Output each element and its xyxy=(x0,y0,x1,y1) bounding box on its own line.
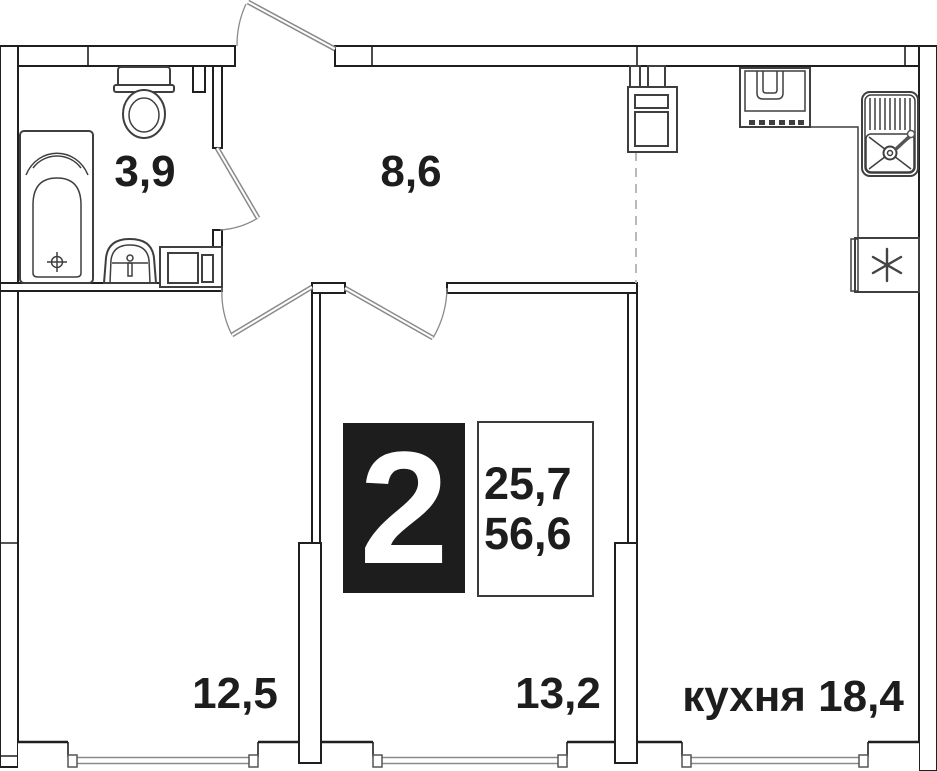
total-area-value: 56,6 xyxy=(484,509,592,559)
floor-plan: 3,9 8,6 12,5 13,2 кухня 18,4 2 25,7 56,6 xyxy=(0,0,937,771)
area-info-box: 25,7 56,6 xyxy=(477,421,594,597)
bedroom-left-area-label: 12,5 xyxy=(192,669,278,719)
hallway-walls xyxy=(312,283,637,293)
partition-bedrooms xyxy=(299,293,321,763)
washer-cabinet-icon xyxy=(160,247,222,287)
bedroom-left-door xyxy=(222,287,312,335)
bathroom-door xyxy=(217,148,258,230)
living-area-value: 25,7 xyxy=(484,459,592,509)
vent-shaft-icon xyxy=(628,66,677,152)
toilet-icon xyxy=(114,67,174,138)
bathroom-area-label: 3,9 xyxy=(114,147,175,197)
bathtub-icon xyxy=(20,131,93,283)
kitchen-room-name: кухня xyxy=(682,672,806,721)
washbasin-icon xyxy=(104,239,156,283)
kitchen-counter xyxy=(810,127,858,238)
hallway-area-label: 8,6 xyxy=(380,147,441,197)
kitchen-area-value: 18,4 xyxy=(818,672,904,721)
kitchen-label: кухня 18,4 xyxy=(682,672,904,722)
bedroom-middle-door xyxy=(345,288,447,338)
floor-plan-drawing xyxy=(0,0,937,771)
kitchen-sink-icon xyxy=(862,92,918,176)
partition-bedroom-kitchen xyxy=(615,293,637,763)
entrance-door xyxy=(237,2,335,49)
rooms-count-value: 2 xyxy=(360,428,449,588)
bedroom-middle-area-label: 13,2 xyxy=(515,669,601,719)
stove-icon xyxy=(740,68,810,127)
rooms-count-badge: 2 xyxy=(343,423,465,593)
fridge-icon xyxy=(851,238,919,292)
facade-wall xyxy=(18,742,919,771)
